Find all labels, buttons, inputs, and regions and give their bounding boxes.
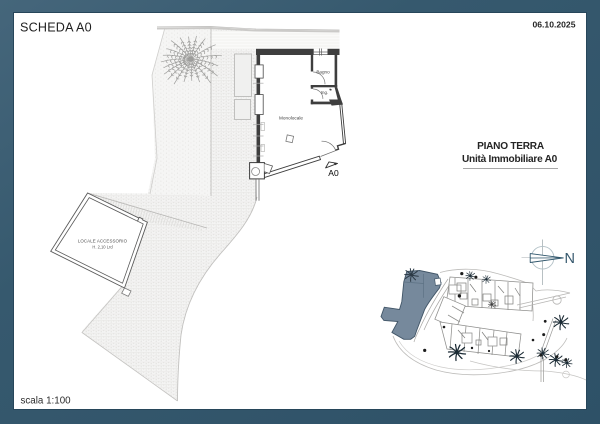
svg-text:A0: A0 bbox=[328, 168, 339, 178]
svg-text:LOCALE ACCESSORIO: LOCALE ACCESSORIO bbox=[78, 239, 128, 244]
svg-text:PIANO TERRA: PIANO TERRA bbox=[477, 141, 545, 152]
svg-text:SCHEDA A0: SCHEDA A0 bbox=[20, 21, 92, 35]
svg-text:H. 2,10 Lrd: H. 2,10 Lrd bbox=[92, 245, 113, 250]
svg-text:Unità Immobiliare A0: Unità Immobiliare A0 bbox=[462, 154, 558, 165]
svg-text:N: N bbox=[565, 251, 575, 267]
svg-text:scala 1:100: scala 1:100 bbox=[21, 396, 72, 407]
svg-text:06.10.2025: 06.10.2025 bbox=[532, 20, 575, 30]
svg-text:Ing.: Ing. bbox=[321, 90, 328, 95]
svg-text:Monolocale: Monolocale bbox=[279, 115, 303, 120]
svg-text:Bagno: Bagno bbox=[316, 70, 330, 75]
